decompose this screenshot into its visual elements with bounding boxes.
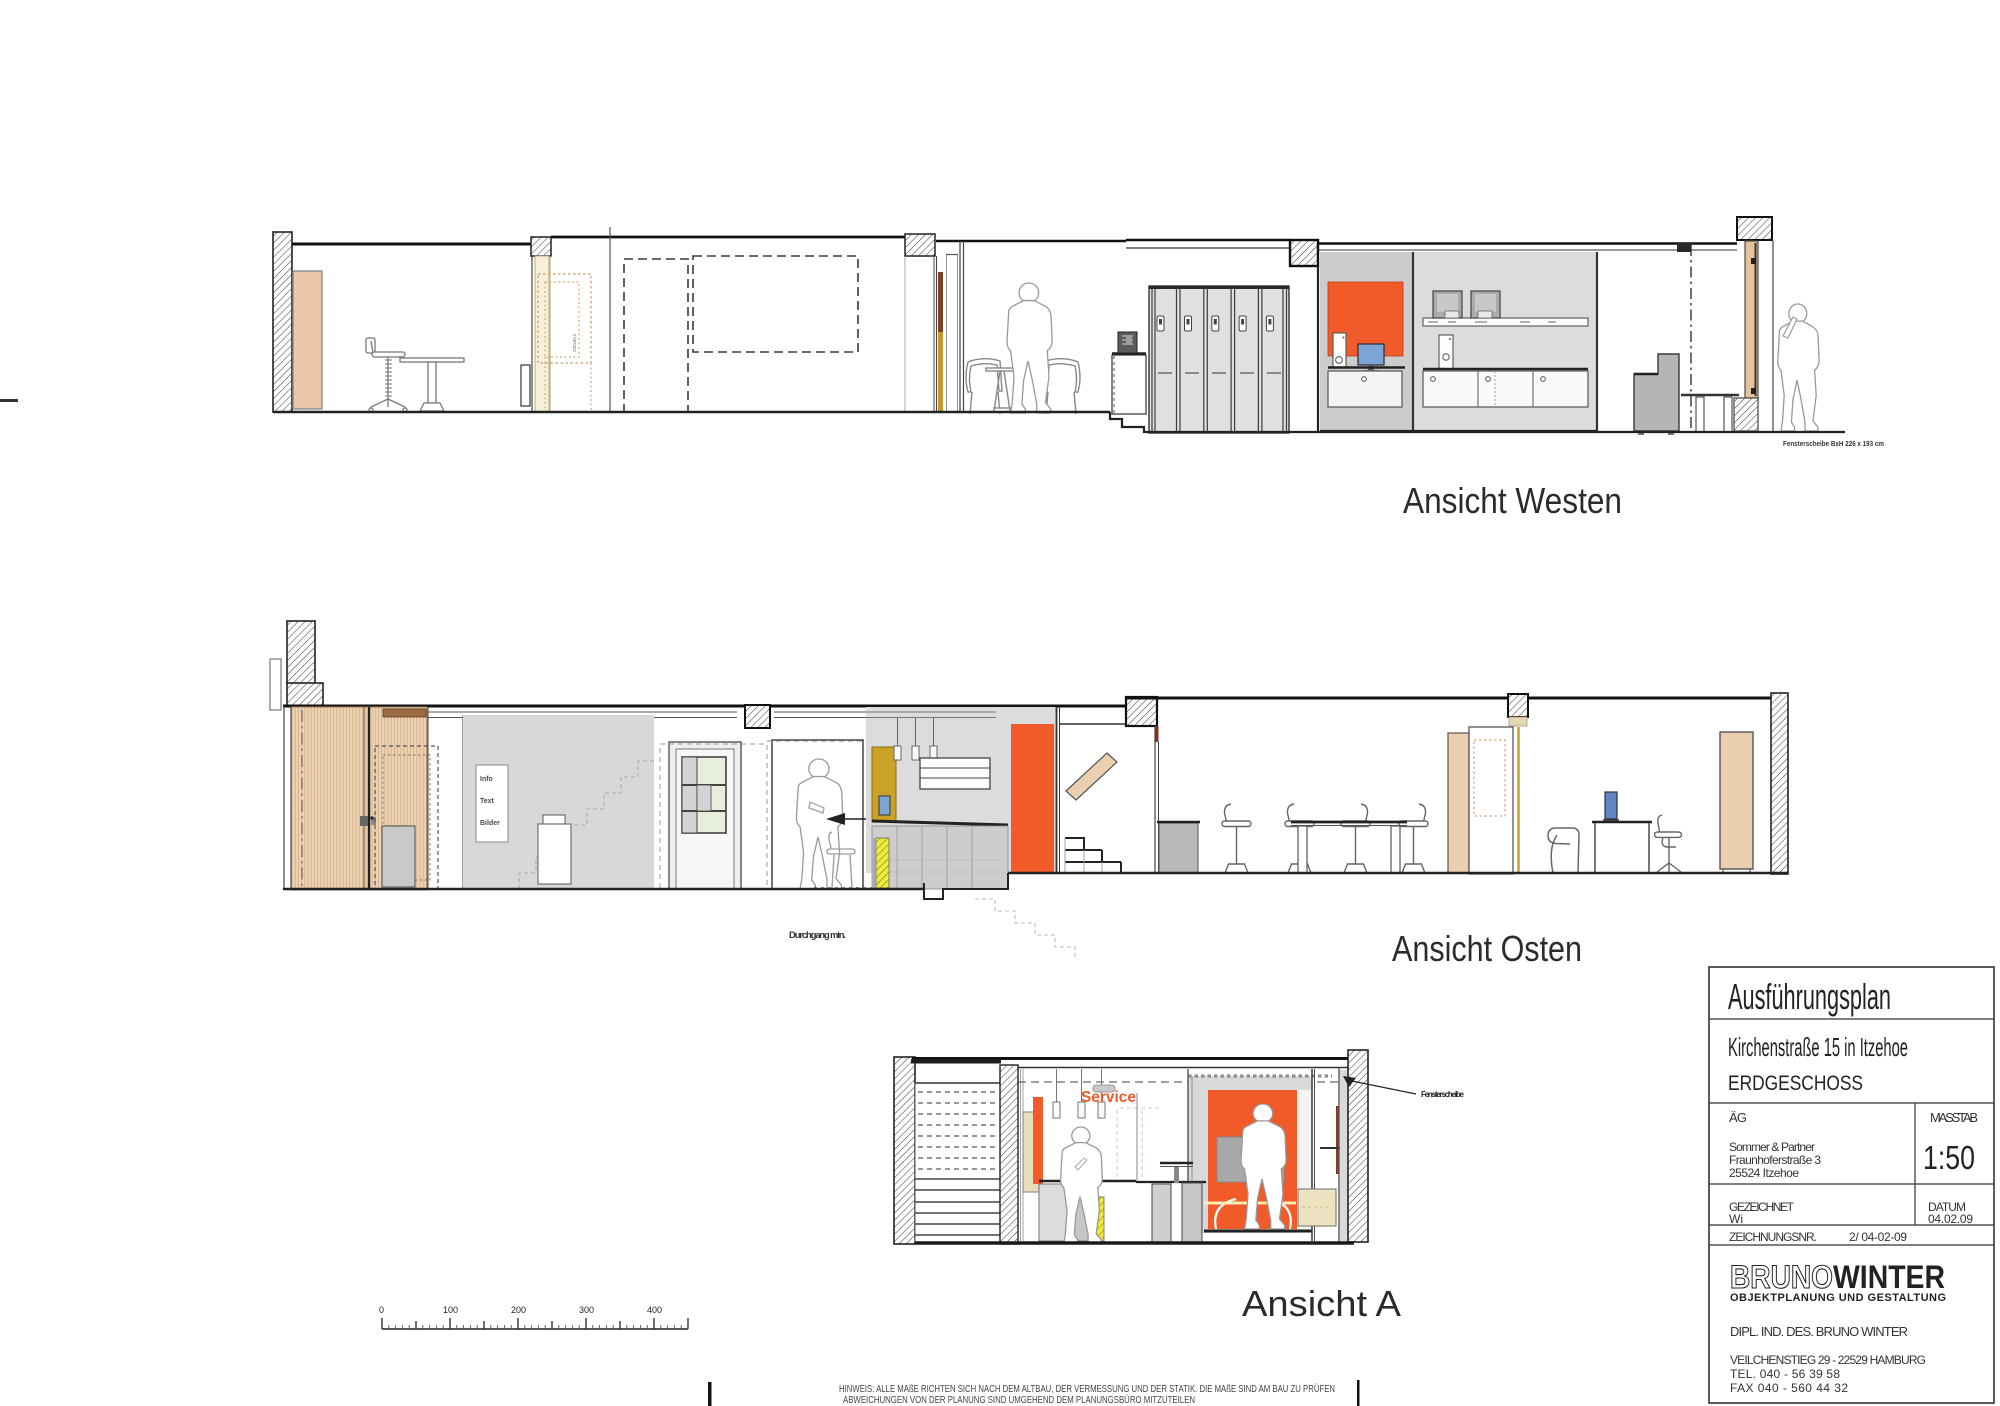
svg-text:Ausführungsplan: Ausführungsplan bbox=[1728, 976, 1891, 1017]
svg-text:TEL. 040 - 56 39 58: TEL. 040 - 56 39 58 bbox=[1730, 1367, 1840, 1381]
svg-text:1:50: 1:50 bbox=[1923, 1139, 1975, 1176]
svg-text:Info: Info bbox=[480, 776, 493, 783]
svg-text:Fensterscheibe: Fensterscheibe bbox=[1421, 1090, 1465, 1099]
svg-text:100: 100 bbox=[443, 1305, 458, 1315]
svg-text:2/ 04-02-09: 2/ 04-02-09 bbox=[1849, 1230, 1907, 1244]
svg-text:Sommer & Partner: Sommer & Partner bbox=[1729, 1140, 1815, 1154]
svg-text:25524 Itzehoe: 25524 Itzehoe bbox=[1729, 1166, 1799, 1180]
svg-text:Service: Service bbox=[1081, 1089, 1136, 1106]
svg-text:0: 0 bbox=[379, 1305, 384, 1315]
svg-text:Ansicht Osten: Ansicht Osten bbox=[1392, 928, 1582, 969]
svg-text:FAX 040 - 560 44 32: FAX 040 - 560 44 32 bbox=[1730, 1381, 1848, 1395]
svg-text:200x88,5: 200x88,5 bbox=[572, 333, 577, 352]
svg-text:ZEICHNUNGSNR.: ZEICHNUNGSNR. bbox=[1729, 1230, 1817, 1244]
svg-text:MASSTAB: MASSTAB bbox=[1930, 1110, 1978, 1125]
svg-text:Kirchenstraße 15 in Itzehoe: Kirchenstraße 15 in Itzehoe bbox=[1728, 1032, 1908, 1062]
svg-text:DIPL. IND. DES. BRUNO WINTER: DIPL. IND. DES. BRUNO WINTER bbox=[1730, 1324, 1908, 1339]
svg-text:BRUNO: BRUNO bbox=[1730, 1259, 1833, 1295]
svg-text:ABWEICHUNGEN VON DER PLANUNG S: ABWEICHUNGEN VON DER PLANUNG SIND UMGEHE… bbox=[843, 1394, 1195, 1406]
svg-text:200: 200 bbox=[511, 1305, 526, 1315]
svg-text:Wi: Wi bbox=[1729, 1212, 1743, 1226]
svg-text:Bilder: Bilder bbox=[480, 820, 500, 827]
svg-text:Ansicht A: Ansicht A bbox=[1242, 1283, 1401, 1324]
svg-text:VEILCHENSTIEG 29 - 22529 HAMBU: VEILCHENSTIEG 29 - 22529 HAMBURG bbox=[1730, 1353, 1926, 1367]
svg-text:Fraunhoferstraße 3: Fraunhoferstraße 3 bbox=[1729, 1153, 1821, 1167]
svg-text:ÄG: ÄG bbox=[1729, 1110, 1747, 1125]
svg-text:WINTER: WINTER bbox=[1833, 1259, 1945, 1295]
svg-text:Fensterscheibe BxH 226 x 193 c: Fensterscheibe BxH 226 x 193 cm bbox=[1783, 439, 1884, 448]
svg-text:Ansicht Westen: Ansicht Westen bbox=[1403, 480, 1622, 521]
svg-text:Durchgang min.: Durchgang min. bbox=[789, 930, 846, 941]
svg-text:300: 300 bbox=[579, 1305, 594, 1315]
svg-text:Text: Text bbox=[480, 798, 495, 805]
svg-text:OBJEKTPLANUNG UND GESTALTUNG: OBJEKTPLANUNG UND GESTALTUNG bbox=[1730, 1292, 1946, 1304]
svg-text:04.02.09: 04.02.09 bbox=[1928, 1212, 1973, 1226]
svg-text:ERDGESCHOSS: ERDGESCHOSS bbox=[1728, 1072, 1863, 1095]
svg-text:400: 400 bbox=[647, 1305, 662, 1315]
